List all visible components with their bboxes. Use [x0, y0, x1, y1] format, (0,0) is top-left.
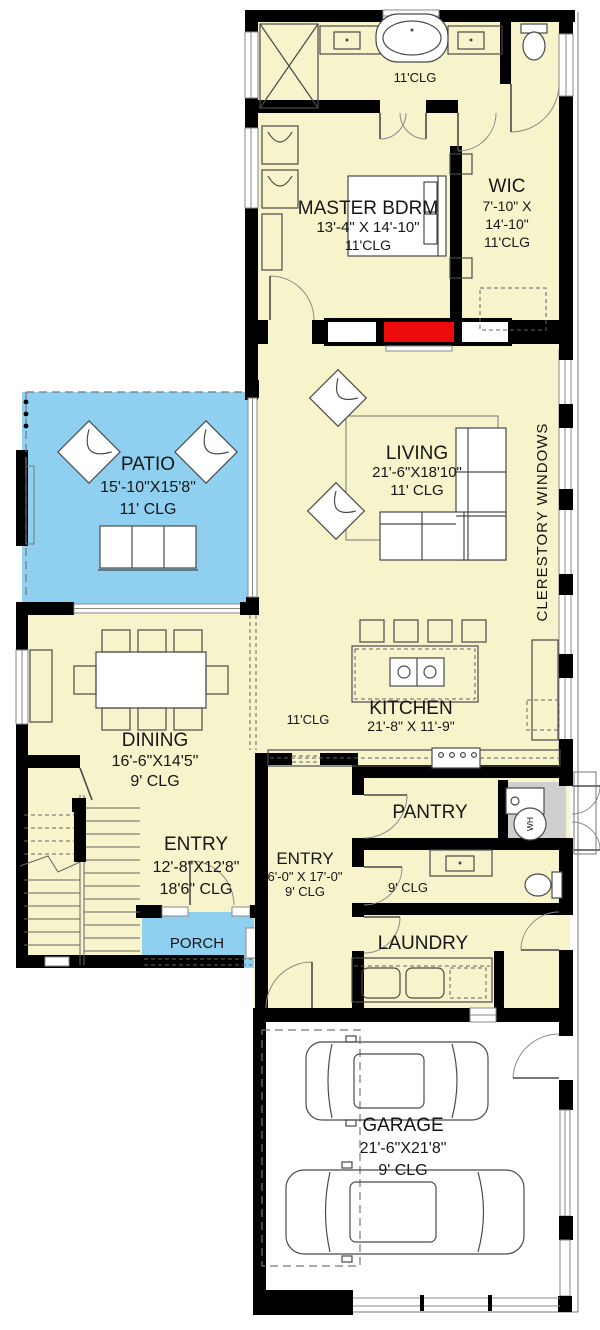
- wic-dims-2: 14'-10": [485, 216, 528, 232]
- clerestory-windows-label: CLERESTORY WINDOWS: [534, 423, 551, 622]
- entry-main-label: ENTRY: [164, 834, 228, 855]
- floor-plan-canvas: WH 11'CLG MASTER BDRM 13'-4" X 14'-10" 1…: [0, 0, 600, 1330]
- garage-label: GARAGE: [362, 1115, 443, 1136]
- kitchen-zone-clg: 11'CLG: [287, 712, 330, 727]
- range: [432, 748, 480, 768]
- floor-plan-svg: WH 11'CLG MASTER BDRM 13'-4" X 14'-10" 1…: [0, 0, 600, 1330]
- kitchen-label: KITCHEN: [369, 698, 452, 719]
- garage-clg: 9' CLG: [378, 1162, 427, 1179]
- powder-clg-label: 9' CLG: [388, 880, 428, 895]
- entry-side-clg: 9' CLG: [285, 884, 325, 899]
- water-heater-label: WH: [525, 817, 535, 831]
- dining-clg: 9' CLG: [130, 773, 179, 790]
- exterior-step: [574, 772, 596, 854]
- wic-label: WIC: [489, 176, 526, 197]
- wic-clg: 11'CLG: [484, 234, 530, 250]
- living-dims: 21'-6"X18'10": [372, 464, 462, 481]
- dining-label: DINING: [122, 730, 189, 751]
- fireplace: [384, 322, 454, 342]
- porch-label: PORCH: [170, 935, 224, 952]
- car: [306, 1036, 488, 1126]
- pantry-label: PANTRY: [392, 802, 468, 823]
- toilet-tank: [552, 872, 562, 898]
- entry-main-clg: 18'6" CLG: [160, 881, 233, 898]
- dining-dims: 16'-6"X14'5": [112, 753, 199, 770]
- patio-sofa: [98, 526, 198, 570]
- patio-post-dot: [24, 412, 29, 417]
- master-bath-clg-label: 11'CLG: [394, 70, 437, 85]
- patio-label: PATIO: [121, 454, 175, 475]
- master-bedroom-clg: 11'CLG: [345, 237, 391, 253]
- living-clg: 11' CLG: [390, 482, 443, 499]
- garage-dashed-zone: [262, 1030, 360, 1266]
- patio-post-dot: [24, 424, 29, 429]
- builtin-cabinet-left: [328, 322, 376, 342]
- entry-side-label: ENTRY: [276, 849, 333, 868]
- entry-side-dims: 6'-0" X 17'-0": [268, 869, 343, 884]
- fireplace-hearth: [386, 346, 452, 351]
- wic-dims-1: 7'-10" X: [483, 198, 533, 214]
- patio-dims: 15'-10"X15'8": [100, 479, 196, 496]
- toilet: [523, 32, 545, 60]
- laundry-label: LAUNDRY: [378, 933, 469, 954]
- master-bedroom-dims: 13'-4" X 14'-10": [316, 219, 419, 236]
- entry-main-dims: 12'-8"X12'8": [153, 859, 240, 876]
- living-label: LIVING: [386, 443, 448, 464]
- garage-dims: 21'-6"X21'8": [360, 1140, 447, 1157]
- patio-clg: 11' CLG: [119, 501, 176, 518]
- kitchen-dims: 21'-8" X 11'-9": [367, 718, 454, 734]
- toilet: [525, 874, 551, 896]
- builtin-cabinet-right: [462, 322, 508, 342]
- patio-post-dot: [24, 400, 29, 405]
- master-bedroom-label: MASTER BDRM: [298, 198, 438, 219]
- dining-table: [96, 652, 206, 708]
